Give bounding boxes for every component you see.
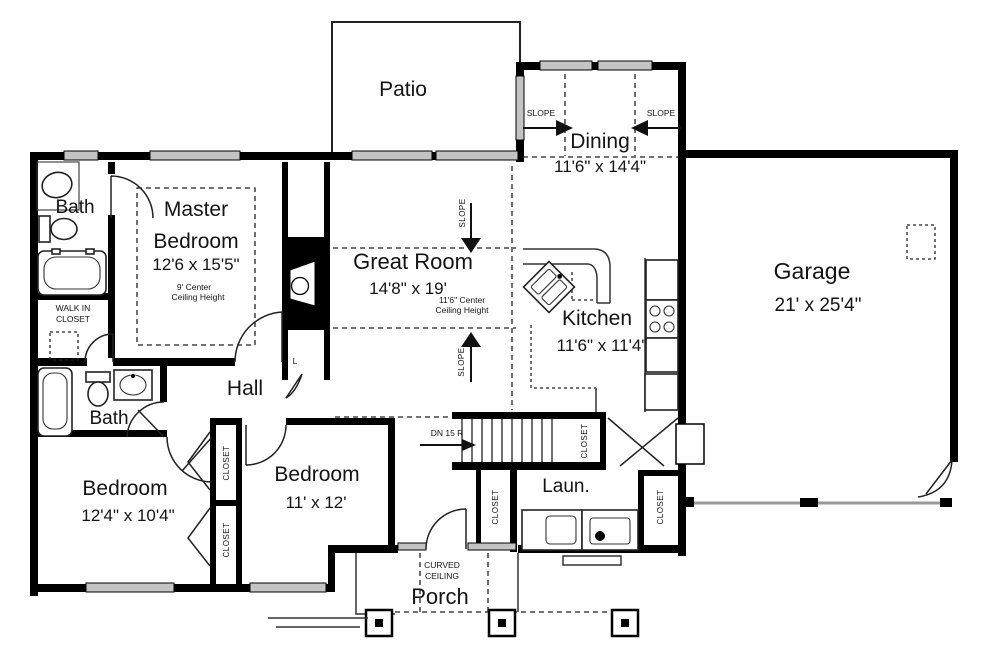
dining-dims: 11'6" x 14'4" (554, 157, 646, 176)
dining-label: Dining (570, 130, 630, 153)
porch-post (489, 610, 515, 636)
kitchen-dims: 11'6" x 11'4" (557, 336, 648, 355)
linen-closet-label: L (293, 356, 298, 366)
garage-door-openings (678, 497, 952, 507)
floor-plan-drawing: Patio SLOPE SLOPE Dining 11'6" x 14'4" G… (0, 0, 993, 664)
master-bath-label: Bath (55, 197, 94, 218)
garage-post-marker (907, 225, 935, 259)
porch-post (366, 610, 392, 636)
closet-label-entry: CLOSET (491, 489, 500, 524)
porch-label: Porch (411, 584, 468, 609)
floor-plan: Patio SLOPE SLOPE Dining 11'6" x 14'4" G… (0, 0, 993, 664)
hall-label: Hall (227, 377, 263, 400)
kitchen-label: Kitchen (562, 307, 632, 330)
bedroom2-dims: 11' x 12' (286, 493, 347, 512)
master-bedroom-label-line1: Master (164, 198, 228, 221)
master-bedroom-dims: 12'6 x 15'5" (152, 255, 239, 274)
garage-label: Garage (774, 258, 851, 284)
master-ceiling-line1: 9' Center (177, 282, 211, 292)
closet-label-stairs: CLOSET (580, 423, 589, 458)
great-room-slope-top-label: SLOPE (458, 198, 467, 227)
kitchen-fixtures (523, 249, 678, 412)
laundry-fixtures (522, 510, 638, 565)
great-room-ceiling-line1: 11'6" Center (439, 295, 485, 305)
laundry-label: Laun. (542, 476, 590, 497)
stairs (420, 419, 552, 462)
porch-ceiling-line2: CEILING (425, 571, 459, 581)
corner-sink (524, 262, 575, 313)
master-bedroom-label-line2: Bedroom (153, 230, 238, 253)
master-bath-fixtures (37, 162, 106, 295)
master-ceiling-line2: Ceiling Height (172, 292, 226, 302)
patio-label: Patio (379, 78, 427, 101)
porch-post (612, 610, 638, 636)
hall-bath-label: Bath (89, 408, 128, 429)
dining-slope-left-label: SLOPE (527, 108, 556, 118)
stairs-direction-label: DN 15 R (431, 428, 464, 438)
great-room-slope-bottom-label: SLOPE (457, 347, 466, 376)
closet-label-laundry: CLOSET (656, 489, 665, 524)
fireplace (282, 162, 330, 380)
walkin-closet-line1: WALK IN (56, 303, 91, 313)
stairs-arrow-icon (462, 439, 476, 451)
great-room-label: Great Room (353, 249, 473, 274)
great-room-dims: 14'8" x 19' (369, 279, 447, 298)
closet-label-bedroom1-bottom: CLOSET (222, 522, 231, 557)
bedroom2-label: Bedroom (274, 463, 359, 486)
bedroom1-dims: 12'4" x 10'4" (81, 506, 174, 525)
walkin-closet-line2: CLOSET (56, 314, 90, 324)
porch-ceiling-line1: CURVED (424, 560, 460, 570)
bedroom1-label: Bedroom (82, 477, 167, 500)
garage-dims: 21' x 25'4" (775, 295, 862, 316)
dining-slope-right-label: SLOPE (647, 108, 676, 118)
great-room-ceiling-line2: Ceiling Height (436, 305, 490, 315)
closet-label-bedroom1-top: CLOSET (222, 445, 231, 480)
